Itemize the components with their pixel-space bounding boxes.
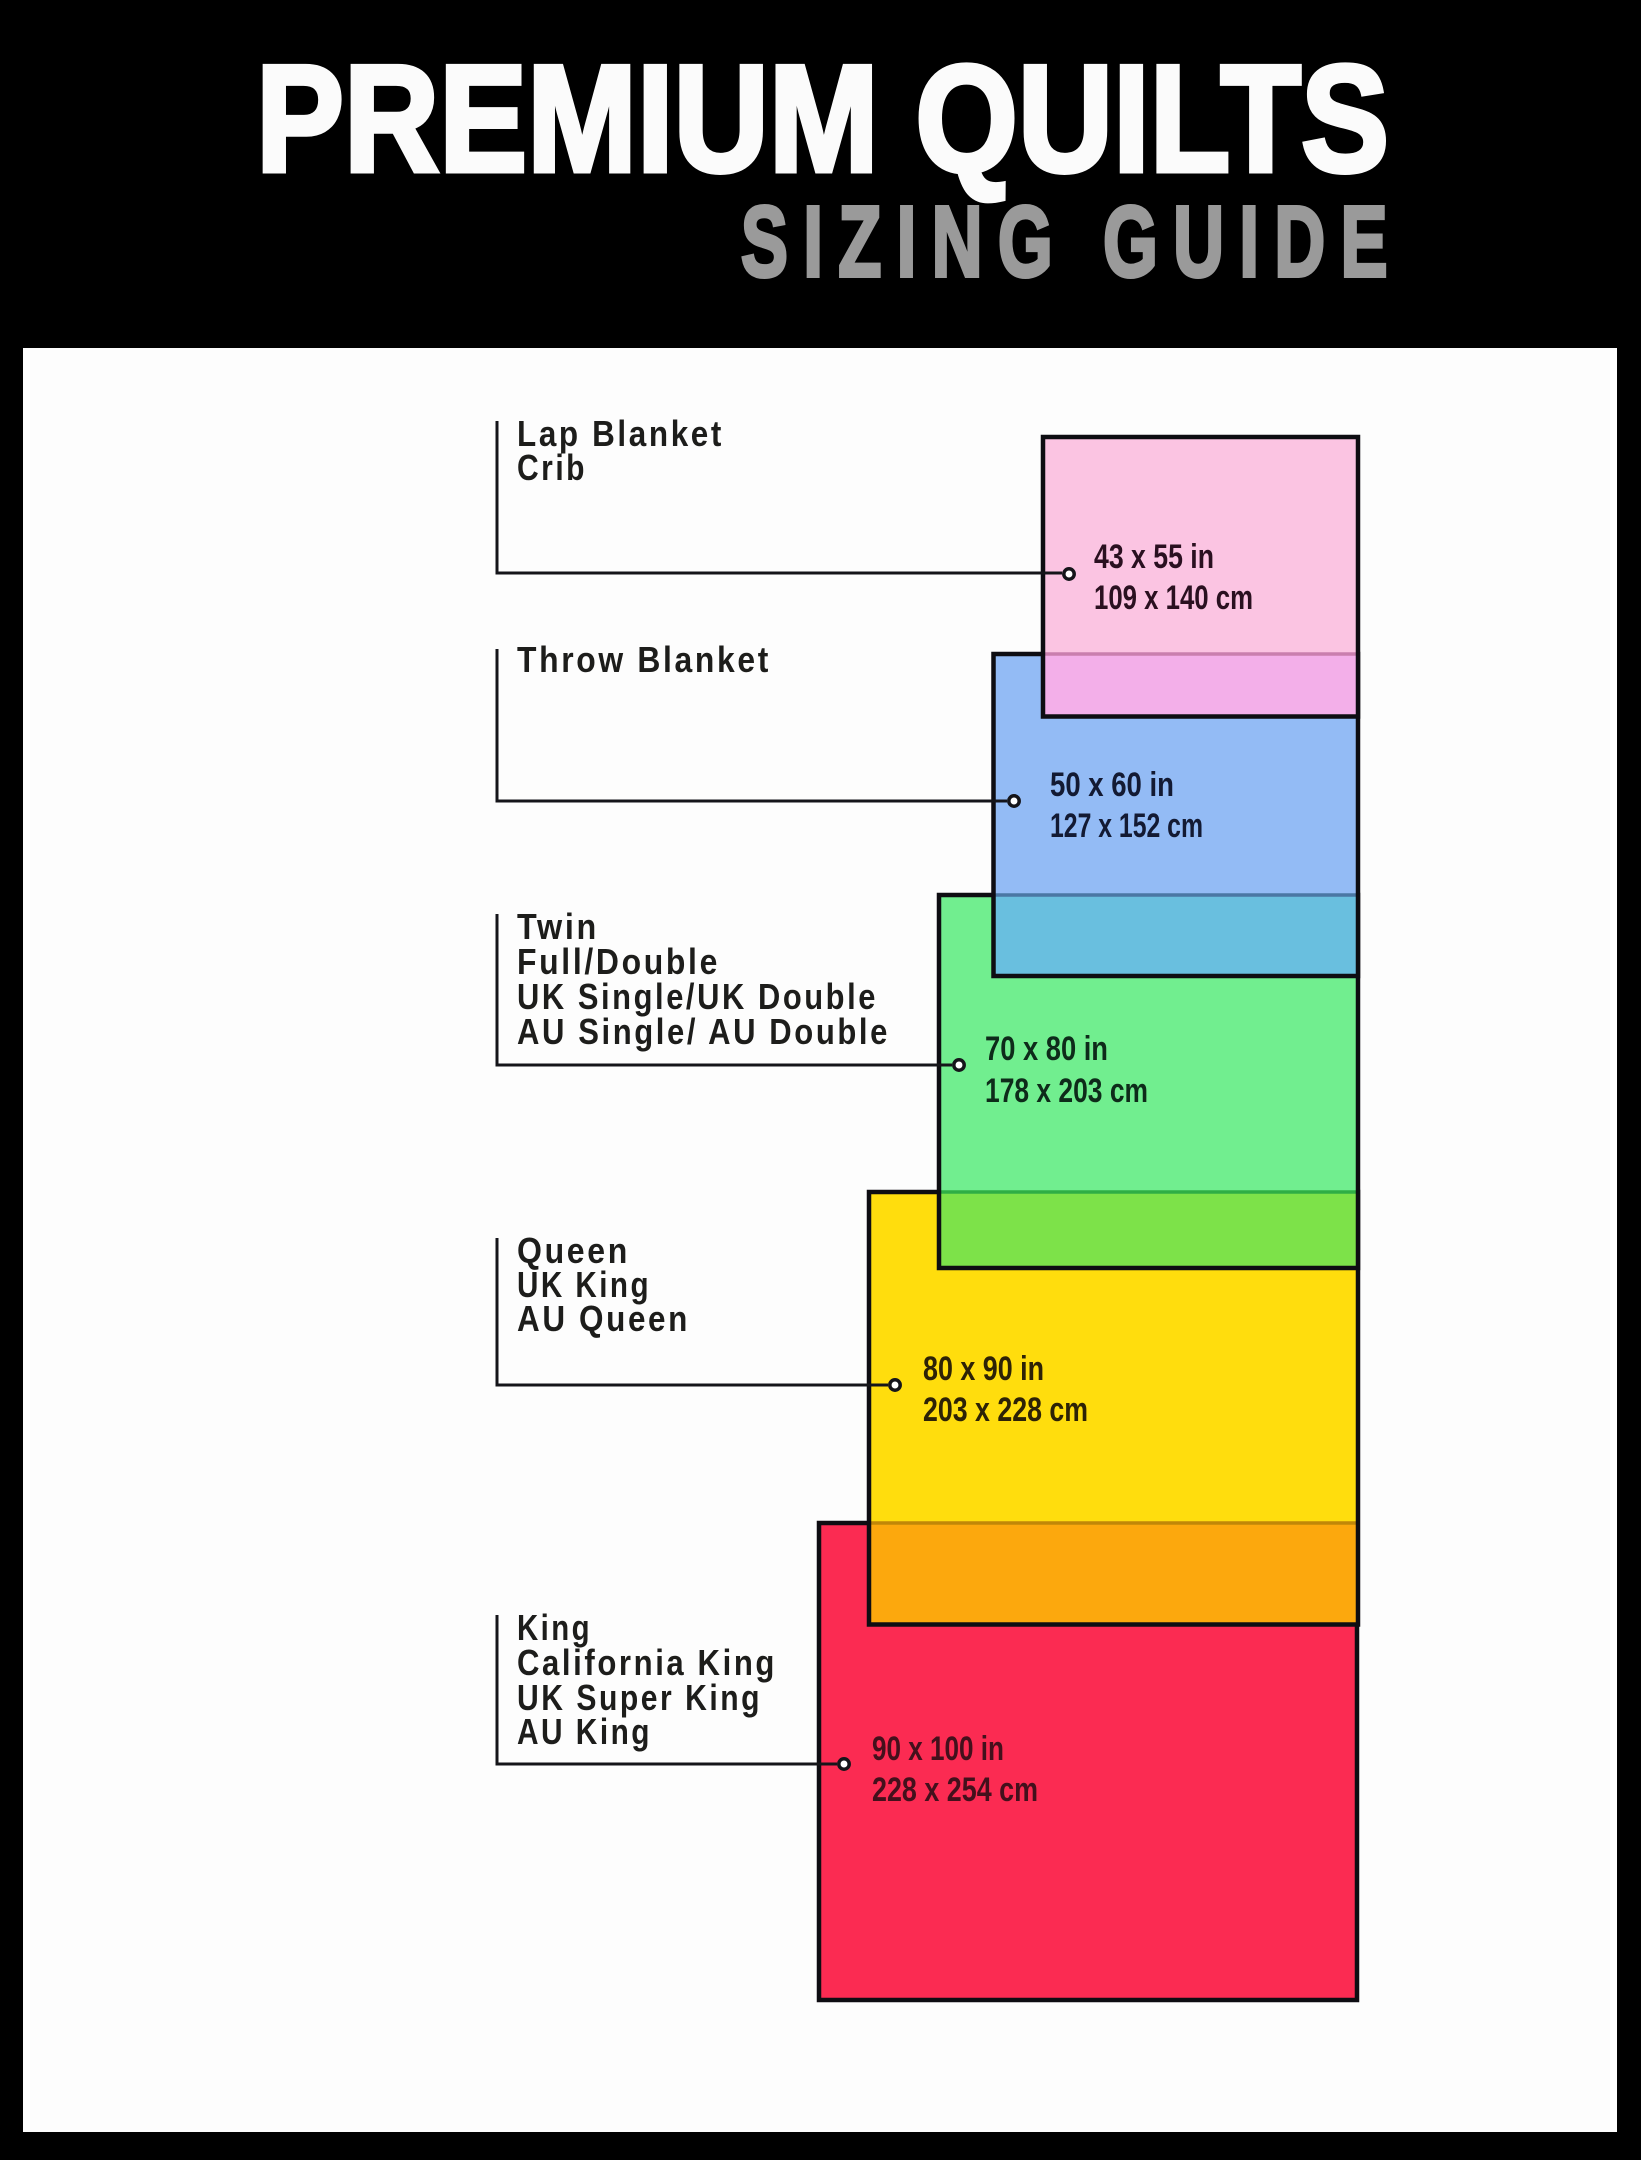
svg-text:203 x 228 cm: 203 x 228 cm bbox=[923, 1391, 1088, 1429]
svg-text:AU King: AU King bbox=[517, 1711, 652, 1752]
svg-text:90 x 100 in: 90 x 100 in bbox=[872, 1730, 1004, 1768]
svg-text:127 x 152 cm: 127 x 152 cm bbox=[1050, 807, 1203, 845]
svg-text:109 x 140 cm: 109 x 140 cm bbox=[1094, 579, 1253, 617]
svg-text:178 x 203 cm: 178 x 203 cm bbox=[985, 1072, 1148, 1110]
svg-text:AU Queen: AU Queen bbox=[517, 1298, 690, 1339]
svg-text:50 x 60 in: 50 x 60 in bbox=[1050, 766, 1174, 804]
svg-text:Throw Blanket: Throw Blanket bbox=[517, 639, 771, 680]
svg-text:PREMIUM QUILTS: PREMIUM QUILTS bbox=[256, 34, 1389, 204]
svg-text:80 x 90 in: 80 x 90 in bbox=[923, 1350, 1044, 1388]
svg-text:70 x 80 in: 70 x 80 in bbox=[985, 1030, 1108, 1068]
svg-text:43 x 55 in: 43 x 55 in bbox=[1094, 538, 1214, 576]
svg-text:228 x 254 cm: 228 x 254 cm bbox=[872, 1771, 1038, 1809]
svg-text:Crib: Crib bbox=[517, 447, 587, 488]
svg-text:AU Single/ AU Double: AU Single/ AU Double bbox=[517, 1011, 890, 1052]
svg-text:SIZING GUIDE: SIZING GUIDE bbox=[741, 186, 1403, 298]
